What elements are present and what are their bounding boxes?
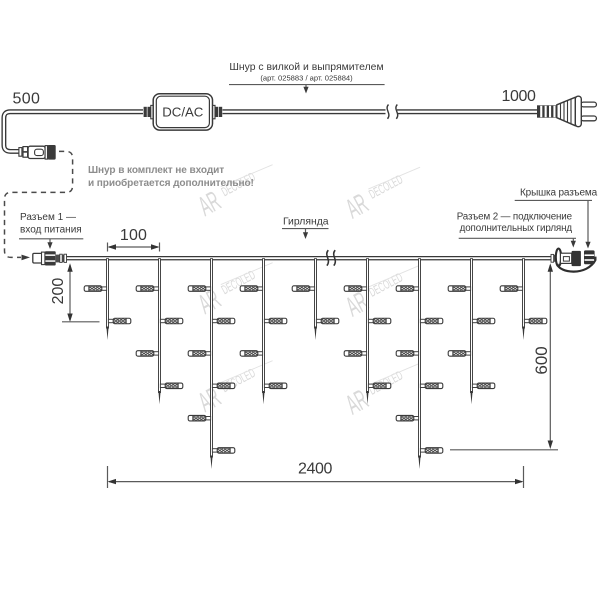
svg-text:500: 500 [13,91,41,108]
svg-text:100: 100 [120,227,147,244]
svg-text:(арт. 025883 / арт. 025884): (арт. 025883 / арт. 025884) [260,73,353,82]
svg-text:2400: 2400 [298,460,332,477]
svg-text:дополнительных гирлянд: дополнительных гирлянд [460,223,573,234]
svg-text:200: 200 [50,278,67,305]
svg-text:600: 600 [532,346,551,374]
svg-text:Крышка разъема: Крышка разъема [520,187,598,198]
svg-text:и приобретается дополнительно!: и приобретается дополнительно! [88,177,254,189]
svg-text:Шнур с вилкой и выпрямителем: Шнур с вилкой и выпрямителем [229,62,383,73]
svg-text:Шнур в комплект не входит: Шнур в комплект не входит [88,165,224,176]
svg-text:вход питания: вход питания [20,225,82,236]
svg-text:Разъем 2 — подключение: Разъем 2 — подключение [457,212,573,223]
svg-text:Гирлянда: Гирлянда [283,216,329,227]
svg-text:1000: 1000 [502,88,536,105]
svg-text:Разъем 1 —: Разъем 1 — [20,212,76,223]
svg-text:DC/AC: DC/AC [162,105,204,120]
